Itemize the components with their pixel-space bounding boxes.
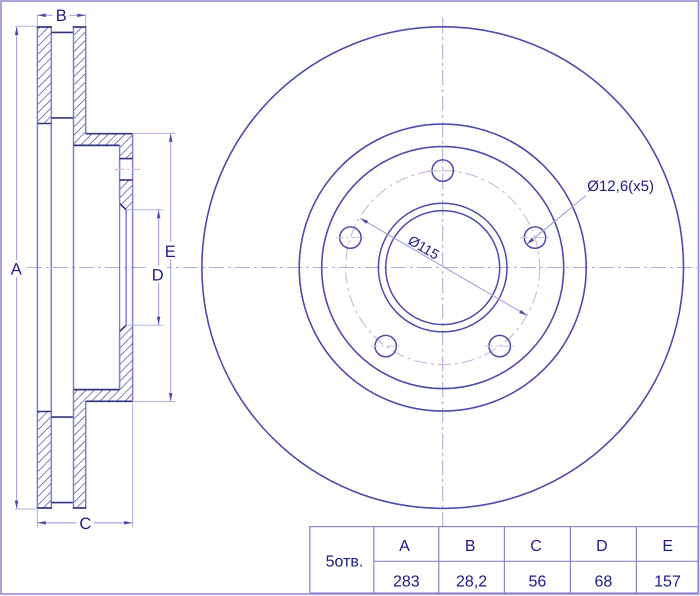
svg-text:68: 68: [595, 573, 613, 590]
svg-text:157: 157: [654, 573, 681, 590]
svg-text:E: E: [662, 538, 673, 555]
svg-text:Ø115: Ø115: [405, 232, 442, 263]
svg-text:B: B: [465, 538, 476, 555]
svg-text:B: B: [56, 7, 67, 25]
svg-text:Ø12,6(x5): Ø12,6(x5): [587, 178, 654, 195]
svg-text:A: A: [11, 261, 22, 279]
svg-text:56: 56: [529, 573, 547, 590]
svg-text:5отв.: 5отв.: [326, 554, 364, 571]
svg-text:D: D: [152, 266, 164, 284]
svg-text:A: A: [399, 538, 410, 555]
svg-text:E: E: [165, 243, 176, 261]
svg-text:C: C: [530, 538, 542, 555]
svg-text:283: 283: [393, 573, 420, 590]
svg-text:D: D: [596, 538, 608, 555]
svg-text:C: C: [79, 515, 91, 533]
svg-text:28,2: 28,2: [456, 573, 487, 590]
